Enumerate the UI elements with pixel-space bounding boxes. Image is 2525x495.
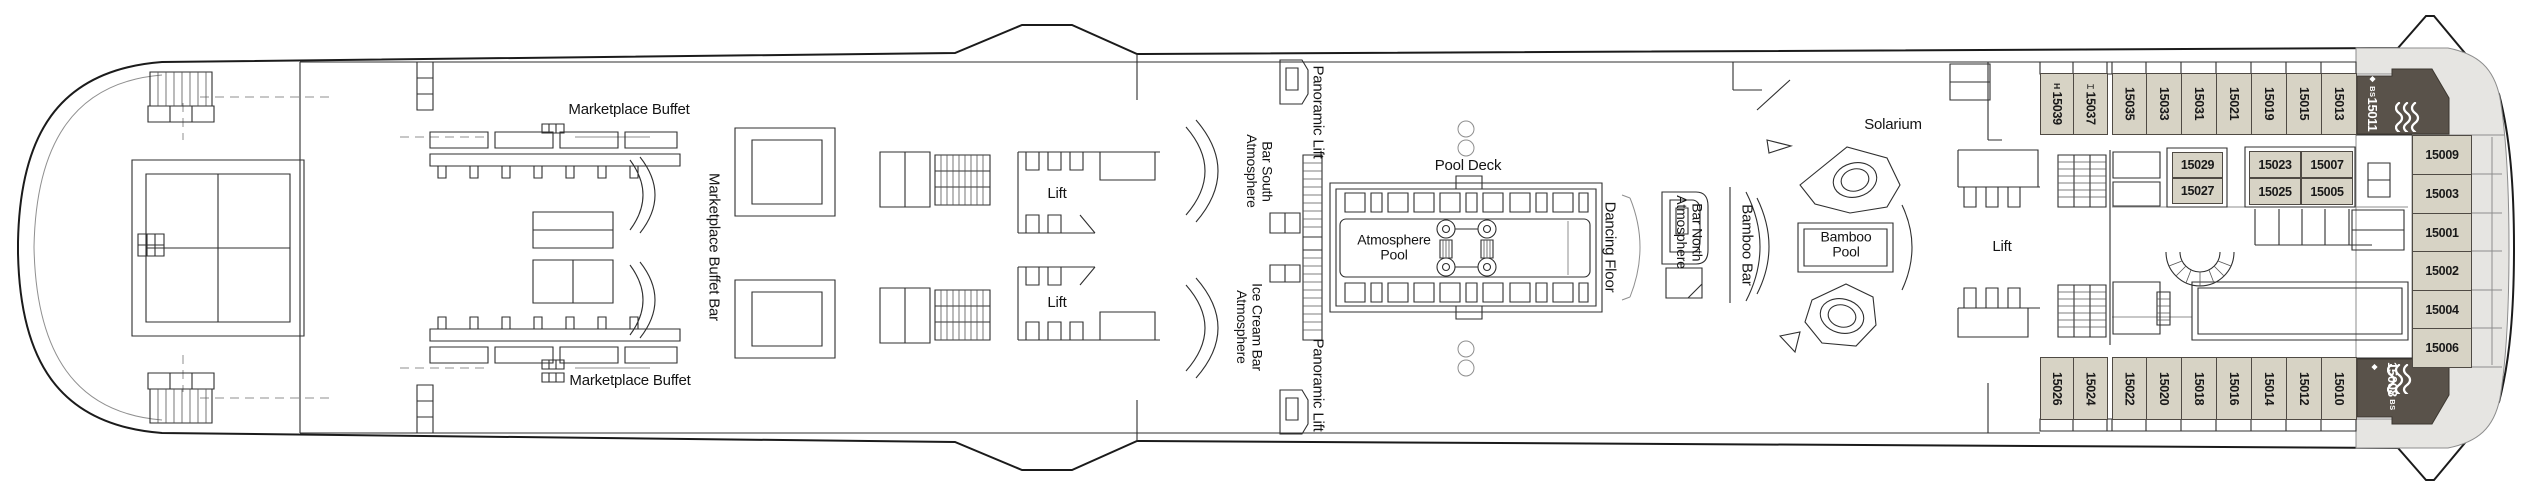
cabin-15005: 15005 [2301, 178, 2353, 205]
label-dancing-floor: Dancing Floor [1601, 202, 1618, 293]
cabin-symbol-icon: ⌶ [2086, 84, 2096, 91]
cabin-15014: 15014 [2251, 357, 2287, 420]
label-bamboo-bar: Bamboo Bar [1738, 204, 1755, 285]
cabin-15003: 15003 [2412, 174, 2472, 214]
cabin-15009: 15009 [2412, 135, 2472, 175]
cabin-15039: H 15039 [2040, 73, 2074, 135]
cabin-15035: 15035 [2112, 73, 2147, 135]
cabin-15013: 15013 [2321, 73, 2357, 135]
ship-deck-plan: Marketplace Buffet Marketplace Buffet Ma… [0, 0, 2525, 495]
cabin-15031: 15031 [2181, 73, 2217, 135]
label-atmosphere-ice-cream-bar: Atmosphere Ice Cream Bar [1234, 283, 1265, 371]
label-panoramic-lift-upper: Panoramic Lift [1309, 65, 1326, 158]
cabin-15012: 15012 [2286, 357, 2322, 420]
label-panoramic-lift-lower: Panoramic Lift [1309, 338, 1326, 431]
cabin-15029: 15029 [2172, 152, 2223, 178]
label-lift-forward-lower: Lift [1047, 295, 1066, 312]
cabin-15004: 15004 [2412, 290, 2472, 329]
label-line: Bamboo [1821, 230, 1872, 245]
diamond-marker: ◆ [2370, 362, 2379, 372]
label-line: Pool [1357, 248, 1430, 263]
cabin-15018: 15018 [2181, 357, 2217, 420]
suite-number: 15011 [2365, 98, 2380, 132]
cabin-15025: 15025 [2249, 178, 2301, 205]
label-lift-forward-upper: Lift [1047, 186, 1066, 203]
label-atmosphere-bar-north: Atmosphere Bar North [1674, 195, 1705, 268]
cabin-15024: 15024 [2073, 357, 2108, 420]
cabin-15016: 15016 [2216, 357, 2252, 420]
cabin-15037: ⌶ 15037 [2073, 73, 2108, 135]
label-line: Bar North [1689, 195, 1704, 268]
cabin-15006: 15006 [2412, 328, 2472, 368]
label-line: Atmosphere [1244, 134, 1259, 207]
cabin-15002: 15002 [2412, 251, 2472, 291]
label-line: Bar South [1259, 134, 1274, 207]
label-line: Atmosphere [1234, 283, 1249, 371]
cabin-15001: 15001 [2412, 213, 2472, 252]
label-marketplace-buffet-lower: Marketplace Buffet [569, 373, 690, 390]
suite-cabin-15011: ◆ BS15011 [2357, 68, 2449, 134]
cabin-15022: 15022 [2112, 357, 2147, 420]
suite-cabin-15008: 15008 BS ◆ [2357, 359, 2449, 424]
cabin-15015: 15015 [2286, 73, 2322, 135]
label-line: Ice Cream Bar [1249, 283, 1264, 371]
suite-category-badge: BS [2368, 86, 2377, 97]
label-atmosphere-pool: Atmosphere Pool [1357, 233, 1430, 264]
cabin-15021: 15021 [2216, 73, 2252, 135]
cabin-15019: 15019 [2251, 73, 2287, 135]
cabin-15007: 15007 [2301, 151, 2353, 178]
cabin-15027: 15027 [2172, 178, 2223, 204]
label-lift-aft: Lift [1992, 239, 2011, 256]
label-bamboo-pool: Bamboo Pool [1821, 230, 1872, 261]
cabin-symbol-icon: H [2052, 83, 2062, 92]
cabin-15023: 15023 [2249, 151, 2301, 178]
label-marketplace-buffet-upper: Marketplace Buffet [568, 102, 689, 119]
cabin-15026: 15026 [2040, 357, 2074, 420]
label-line: Atmosphere [1357, 233, 1430, 248]
label-solarium: Solarium [1864, 117, 1922, 134]
cabin-15020: 15020 [2146, 357, 2182, 420]
label-line: Pool [1821, 245, 1872, 260]
cabin-15033: 15033 [2146, 73, 2182, 135]
label-marketplace-buffet-bar: Marketplace Buffet Bar [705, 173, 722, 321]
diamond-marker: ◆ [2368, 74, 2377, 84]
label-atmosphere-bar-south: Atmosphere Bar South [1244, 134, 1275, 207]
label-line: Atmosphere [1674, 195, 1689, 268]
cabin-15010: 15010 [2321, 357, 2357, 420]
label-pool-deck: Pool Deck [1435, 158, 1502, 175]
suite-category-badge: BS [2388, 399, 2397, 410]
